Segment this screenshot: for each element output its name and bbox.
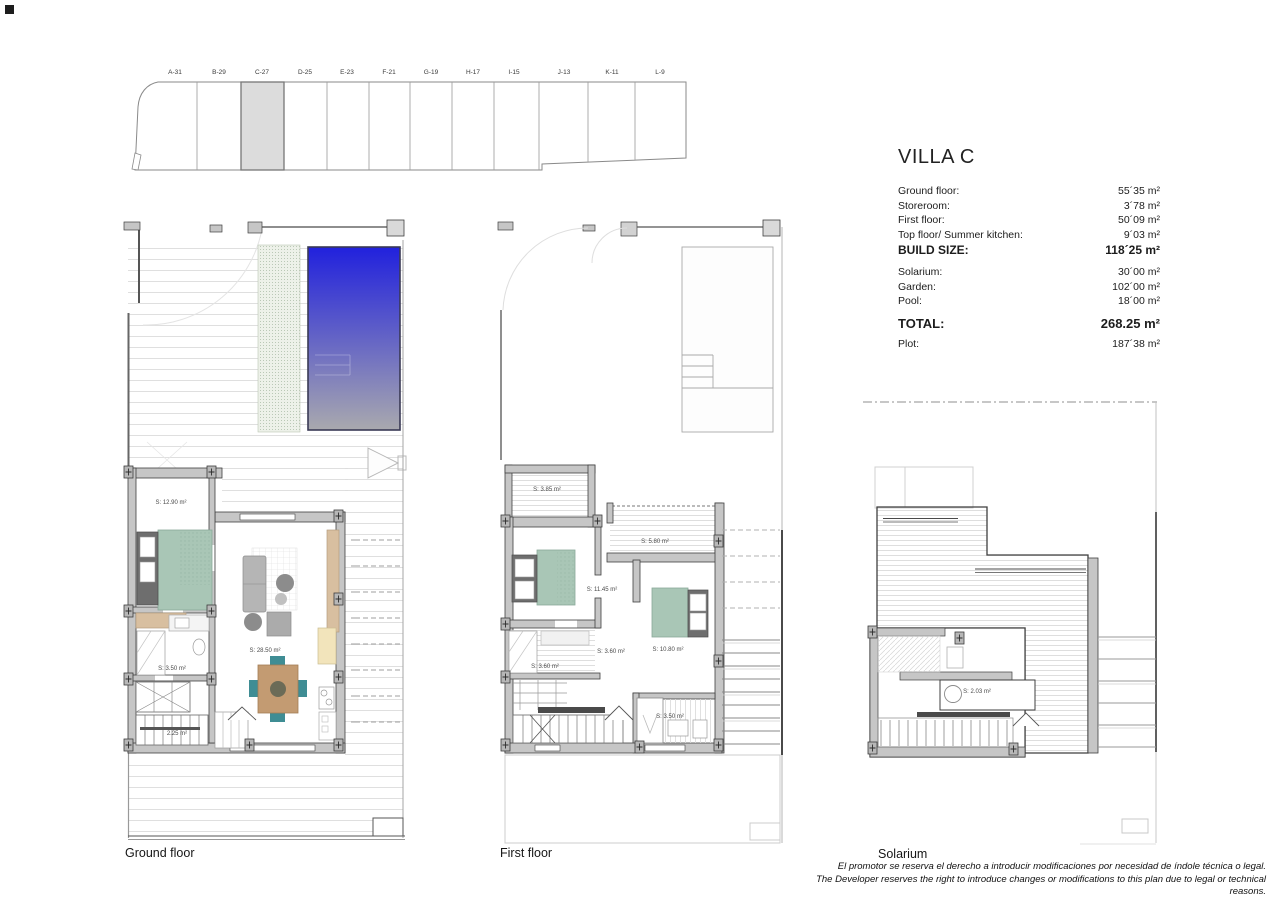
room-area-label: S: 2.03 m²	[947, 688, 1007, 696]
exterior-stair	[1098, 637, 1156, 747]
lawn	[258, 245, 300, 432]
stairs	[513, 680, 633, 743]
living-room-furniture	[243, 548, 297, 636]
pool-outline-below	[682, 247, 773, 432]
room-area-label: S: 11.45 m²	[572, 586, 632, 594]
spec-row-build-size: BUILD SIZE:118´25 m²	[898, 243, 1160, 256]
utility-box	[373, 818, 403, 836]
ground-floor-plan: S: 12.90 m² S: 28.50 m² S: 3.50 m² 2.25 …	[115, 215, 415, 847]
room-area-label: S: 3.60 m²	[581, 648, 641, 656]
room-area-label: S: 5.80 m²	[625, 538, 685, 546]
utility-box	[1122, 819, 1148, 833]
spec-row: First floor:50´09 m²	[898, 214, 1160, 227]
pergola-outline	[875, 467, 973, 508]
lot-label: G-19	[411, 69, 451, 76]
room-area-label: S: 3.60 m²	[515, 663, 575, 671]
double-bed	[137, 530, 212, 610]
site-plan	[125, 65, 695, 175]
room-area-label: S: 28.50 m²	[235, 647, 295, 655]
spec-row: Pool:18´00 m²	[898, 295, 1160, 308]
room-area-label: S: 3.50 m²	[640, 713, 700, 721]
dining-set	[249, 656, 307, 722]
site-boundary	[135, 82, 686, 170]
spec-row: Ground floor:55´35 m²	[898, 185, 1160, 198]
room-area-label: S: 3.50 m²	[142, 665, 202, 673]
lot-label: J-13	[544, 69, 584, 76]
caption-ground-floor: Ground floor	[125, 846, 194, 860]
villa-title: VILLA C	[898, 146, 1160, 169]
utility-box	[750, 823, 780, 840]
spec-row-plot: Plot:187´38 m²	[898, 338, 1160, 351]
terrace-deck	[610, 508, 715, 553]
terrace-deck	[512, 473, 588, 520]
room-area-label: 2.25 m²	[147, 730, 207, 738]
lot-label: L-9	[640, 69, 680, 76]
lot-label: F-21	[369, 69, 409, 76]
caption-first-floor: First floor	[500, 846, 552, 860]
double-bed	[652, 588, 708, 637]
disclaimer-en: The Developer reserves the right to intr…	[786, 874, 1266, 899]
disclaimer-es: El promotor se reserva el derecho a intr…	[786, 861, 1266, 874]
highlighted-lot-c27	[241, 82, 284, 170]
lot-label: E-23	[327, 69, 367, 76]
spec-row-total: TOTAL:268.25 m²	[898, 316, 1160, 329]
lot-label: B-29	[199, 69, 239, 76]
lot-label: C-27	[242, 69, 282, 76]
pool	[308, 247, 400, 430]
spec-row: Top floor/ Summer kitchen:9´03 m²	[898, 229, 1160, 242]
lot-label: I-15	[494, 69, 534, 76]
deck-right-wall	[1088, 558, 1098, 753]
spec-row: Storeroom:3´78 m²	[898, 200, 1160, 213]
plot-outline	[505, 755, 780, 843]
lot-label: A-31	[155, 69, 195, 76]
caption-solarium: Solarium	[878, 847, 927, 861]
double-bed	[512, 550, 575, 605]
legal-disclaimer: El promotor se reserva el derecho a intr…	[786, 861, 1266, 899]
lot-label: H-17	[453, 69, 493, 76]
lot-label: K-11	[592, 69, 632, 76]
room-area-label: S: 12.90 m²	[141, 499, 201, 507]
spec-row: Solarium:30´00 m²	[898, 266, 1160, 279]
lot-label: D-25	[285, 69, 325, 76]
room-area-label: S: 10.80 m²	[638, 646, 698, 654]
spec-row: Garden:102´00 m²	[898, 281, 1160, 294]
registration-mark	[5, 5, 14, 14]
solarium-plan: S: 2.03 m²	[855, 385, 1165, 850]
floor-plan-sheet: A-31 B-29 C-27 D-25 E-23 F-21 G-19 H-17 …	[0, 0, 1280, 905]
spec-panel: VILLA C Ground floor:55´35 m² Storeroom:…	[898, 146, 1160, 183]
exterior-stair	[722, 530, 780, 744]
first-floor-plan: S: 3.85 m² S: 5.80 m² S: 11.45 m² S: 3.6…	[495, 215, 787, 847]
room-area-label: S: 3.85 m²	[517, 486, 577, 494]
